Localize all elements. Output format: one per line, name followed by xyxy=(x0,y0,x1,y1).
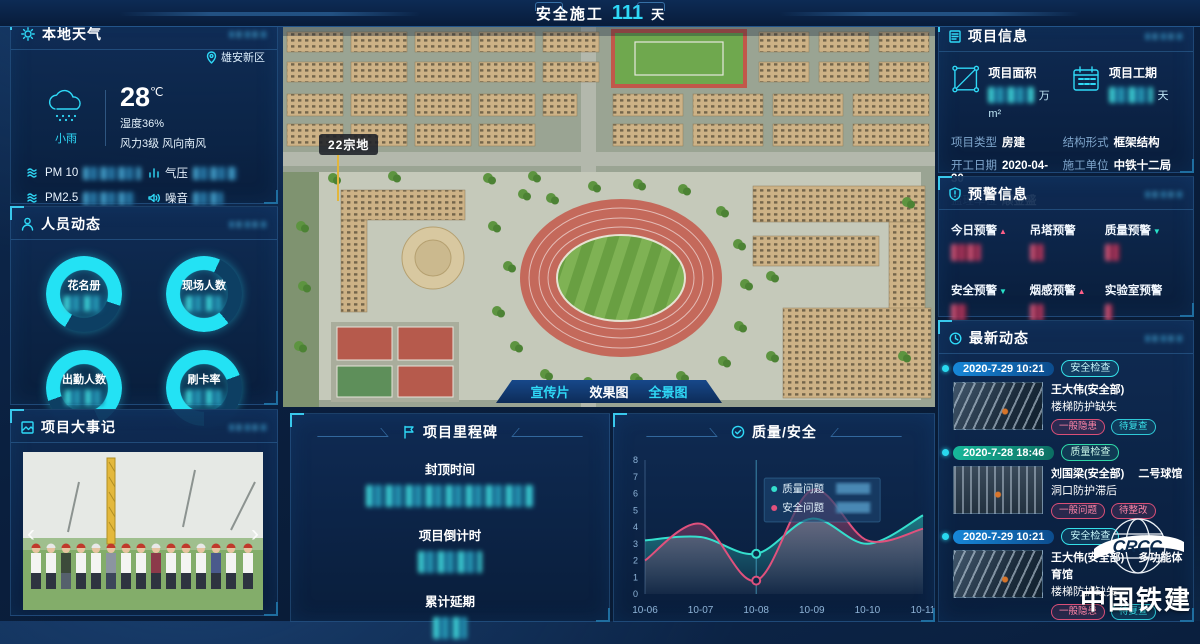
svg-text:质量问题: 质量问题 xyxy=(782,482,824,495)
top-header-bar: 安全施工 111 天 xyxy=(0,0,1200,27)
location-name: 雄安新区 xyxy=(221,49,265,65)
warnings-panel-title: 预警信息 xyxy=(968,184,1028,204)
timeline-dot xyxy=(942,533,949,540)
photo-icon xyxy=(21,421,34,434)
stat-duration: 项目工期 天 xyxy=(1071,64,1181,122)
entry-type-badge: 质量检查 xyxy=(1061,444,1119,461)
wind: 风力3级 风向南风 xyxy=(120,135,206,151)
blurred-count xyxy=(951,304,967,321)
blurred-value xyxy=(988,87,1034,103)
location-pin-icon xyxy=(206,51,217,64)
entry-type-badge: 安全检查 xyxy=(1061,360,1119,377)
entry-person: 王大伟(安全部) xyxy=(1051,384,1124,396)
calendar-icon xyxy=(1071,64,1101,94)
blurred-count xyxy=(1105,304,1113,321)
entry-issue: 洞口防护滞后 xyxy=(1051,483,1182,500)
events-photo-carousel: ‹ › xyxy=(23,452,265,615)
metric-label: PM 10 xyxy=(45,167,78,179)
haze-icon xyxy=(27,168,40,178)
pressure-icon xyxy=(148,168,160,178)
svg-text:安全问题: 安全问题 xyxy=(782,501,824,514)
humidity: 湿度36% xyxy=(120,115,206,131)
weather-current: 小雨 28℃ 湿度36% 风力3级 风向南风 xyxy=(29,84,277,151)
events-panel: 项目大事记 xyxy=(10,409,278,616)
rain-cloud-icon xyxy=(43,89,89,123)
weather-panel-title: 本地天气 xyxy=(42,24,102,44)
project-info-panel: 项目信息 项目面积 万m² 项目工期 天 项目类型房建 结构形式框架结构 开工日… xyxy=(938,18,1194,173)
svg-text:10-06: 10-06 xyxy=(632,605,658,616)
svg-text:10-08: 10-08 xyxy=(743,605,769,616)
entry-datetime: 2020-7-29 10:21 xyxy=(953,530,1054,544)
svg-text:10-11: 10-11 xyxy=(911,605,933,616)
stat-label: 项目工期 xyxy=(1109,64,1168,81)
personnel-rings: 花名册 现场人数 出勤人数 刷卡率 xyxy=(11,240,277,426)
document-icon xyxy=(949,30,961,43)
render-3d-scene xyxy=(283,26,935,407)
area-icon xyxy=(951,64,980,94)
svg-text:0: 0 xyxy=(633,589,638,599)
ring-label: 刷卡率 xyxy=(188,371,221,387)
update-entry[interactable]: 2020-7-29 10:21 安全检查 王大伟(安全部) 楼梯防护缺失 一般隐… xyxy=(953,360,1185,435)
milestone-label: 封顶时间 xyxy=(291,459,609,478)
alarm-shield-icon xyxy=(949,187,961,201)
flag-icon xyxy=(402,425,416,439)
milestone-topping-date: 封顶时间 xyxy=(291,459,609,512)
update-entry[interactable]: 2020-7-28 18:46 质量检查 刘国梁(安全部)二号球馆 洞口防护滞后… xyxy=(953,444,1185,519)
milestone-panel: 项目里程碑 封顶时间 项目倒计时 累计延期 xyxy=(290,413,610,622)
stat-label: 项目面积 xyxy=(988,64,1061,81)
quality-panel-title: 质量/安全 xyxy=(752,422,817,442)
blurred-value xyxy=(83,167,141,180)
header-decor-blur xyxy=(1145,335,1183,342)
updates-panel-title: 最新动态 xyxy=(969,328,1029,348)
entry-datetime: 2020-7-28 18:46 xyxy=(953,446,1054,460)
shield-check-icon xyxy=(731,425,745,439)
ring-label: 出勤人数 xyxy=(62,371,106,387)
tab-panorama[interactable]: 全景图 xyxy=(649,382,688,401)
blurred-value xyxy=(1109,87,1153,103)
trend-down-icon: ▼ xyxy=(1153,227,1161,236)
svg-text:6: 6 xyxy=(633,489,638,499)
svg-text:2: 2 xyxy=(633,556,638,566)
ring-label: 花名册 xyxy=(68,277,101,293)
crcc-globe-icon: CRCC xyxy=(1076,515,1196,581)
warnings-grid: 今日预警▲ 吊塔预警 质量预警▼ 安全预警▼ 烟感预警▲ 实验室预警 xyxy=(939,210,1193,326)
blurred-count xyxy=(1030,304,1044,321)
project-stats: 项目面积 万m² 项目工期 天 xyxy=(939,52,1193,126)
header-decor-blur xyxy=(1145,33,1183,40)
stat-unit: 天 xyxy=(1157,90,1168,102)
svg-text:10-07: 10-07 xyxy=(688,605,714,616)
header-deco-line-right xyxy=(780,12,1080,16)
location: 雄安新区 xyxy=(206,49,265,65)
haze-icon xyxy=(27,193,40,203)
field-structure: 结构形式框架结构 xyxy=(1063,134,1181,150)
tab-render-view[interactable]: 效果图 xyxy=(589,382,628,401)
ring-roster: 花名册 xyxy=(46,256,122,332)
crcc-name: 中国铁建 xyxy=(1076,580,1196,617)
entry-issue: 楼梯防护缺失 xyxy=(1051,399,1156,416)
header-decor-blur xyxy=(229,31,267,38)
temperature: 28℃ xyxy=(120,84,206,111)
parcel-pin-label: 22宗地 xyxy=(319,134,378,155)
tab-promo-video[interactable]: 宣传片 xyxy=(530,382,569,401)
milestone-delay: 累计延期 xyxy=(291,591,609,644)
crcc-abbr: CRCC xyxy=(1112,537,1164,556)
carousel-next-arrow[interactable]: › xyxy=(251,522,259,546)
milestone-label: 累计延期 xyxy=(291,591,609,610)
blurred-date xyxy=(366,485,534,507)
entry-tag-severity: 一般隐患 xyxy=(1051,419,1105,435)
ring-label: 现场人数 xyxy=(182,277,226,293)
warnings-panel: 预警信息 今日预警▲ 吊塔预警 质量预警▼ 安全预警▼ 烟感预警▲ 实验室预警 xyxy=(938,176,1194,317)
svg-text:4: 4 xyxy=(633,522,638,532)
milestone-countdown: 项目倒计时 xyxy=(291,525,609,578)
weather-panel: 本地天气 雄安新区 小雨 28℃ 湿度36% 风力3级 风向南风 PM 10 气… xyxy=(10,16,278,204)
blurred-count xyxy=(64,296,104,311)
blurred-value xyxy=(193,192,223,205)
crcc-logo: CRCC 中国铁建 xyxy=(1076,515,1196,617)
blurred-count xyxy=(186,296,222,311)
blurred-value xyxy=(193,167,237,180)
metric-label: 气压 xyxy=(165,165,188,181)
personnel-panel-title: 人员动态 xyxy=(41,214,101,234)
clock-icon xyxy=(949,332,962,345)
weather-condition: 小雨 xyxy=(29,130,103,146)
field-project-type: 项目类型房建 xyxy=(951,134,1059,150)
entry-tag-status: 待复查 xyxy=(1111,419,1156,435)
header-decor-blur xyxy=(229,424,267,431)
timeline-dot xyxy=(942,449,949,456)
header-decor-blur xyxy=(1145,191,1183,198)
header-bracket-right xyxy=(637,2,665,11)
blurred-count xyxy=(418,551,482,573)
air-metrics: PM 10 气压 PM2.5 噪音 xyxy=(27,165,263,206)
blurred-count xyxy=(186,390,222,405)
site-3d-viewer[interactable]: 22宗地 宣传片 效果图 全景图 xyxy=(283,26,935,407)
entry-photo-thumb xyxy=(953,550,1043,598)
quality-safety-chart[interactable]: 01234567810-0610-0710-0810-0910-1010-11质… xyxy=(615,448,933,620)
header-bracket-left xyxy=(535,2,563,11)
milestone-panel-title: 项目里程碑 xyxy=(423,422,498,442)
trend-up-icon: ▲ xyxy=(999,227,1007,236)
warning-today: 今日预警▲ xyxy=(951,222,1024,266)
blurred-count xyxy=(433,617,467,639)
person-icon xyxy=(21,217,34,231)
divider xyxy=(105,90,106,146)
carousel-prev-arrow[interactable]: ‹ xyxy=(27,522,35,546)
speaker-icon xyxy=(148,193,160,203)
warning-quality: 质量预警▼ xyxy=(1105,222,1181,266)
blurred-count xyxy=(1105,244,1120,261)
warning-crane: 吊塔预警 xyxy=(1030,222,1099,266)
events-panel-title: 项目大事记 xyxy=(41,417,116,437)
svg-text:10-09: 10-09 xyxy=(799,605,825,616)
svg-text:5: 5 xyxy=(633,505,638,515)
entry-place: 二号球馆 xyxy=(1138,468,1182,480)
entry-datetime: 2020-7-29 10:21 xyxy=(953,362,1054,376)
viewer-tabs: 宣传片 效果图 全景图 xyxy=(496,380,722,403)
header-decor-blur xyxy=(229,221,267,228)
svg-text:8: 8 xyxy=(633,455,638,465)
stat-area: 项目面积 万m² xyxy=(951,64,1061,122)
header-deco-line-left xyxy=(120,12,420,16)
blurred-count xyxy=(65,390,103,405)
ring-onsite: 现场人数 xyxy=(166,256,242,332)
blurred-count xyxy=(951,244,981,261)
timeline-dot xyxy=(942,365,949,372)
milestone-label: 项目倒计时 xyxy=(291,525,609,544)
group-photo xyxy=(23,452,263,610)
personnel-panel: 人员动态 花名册 现场人数 出勤人数 刷卡率 xyxy=(10,206,278,405)
entry-photo-thumb xyxy=(953,382,1043,430)
trend-down-icon: ▼ xyxy=(999,287,1007,296)
sun-icon xyxy=(21,27,35,41)
entry-person: 刘国梁(安全部) xyxy=(1051,468,1124,480)
metric-label: 噪音 xyxy=(165,190,188,206)
blurred-count xyxy=(1030,244,1044,261)
svg-text:10-10: 10-10 xyxy=(855,605,881,616)
metric-label: PM2.5 xyxy=(45,192,78,204)
quality-safety-panel: 质量/安全 01234567810-0610-0710-0810-0910-10… xyxy=(613,413,935,622)
svg-text:3: 3 xyxy=(633,539,638,549)
svg-text:1: 1 xyxy=(633,572,638,582)
trend-up-icon: ▲ xyxy=(1078,287,1086,296)
entry-photo-thumb xyxy=(953,466,1043,514)
project-info-title: 项目信息 xyxy=(968,26,1028,46)
svg-text:7: 7 xyxy=(633,472,638,482)
blurred-value xyxy=(83,192,135,205)
